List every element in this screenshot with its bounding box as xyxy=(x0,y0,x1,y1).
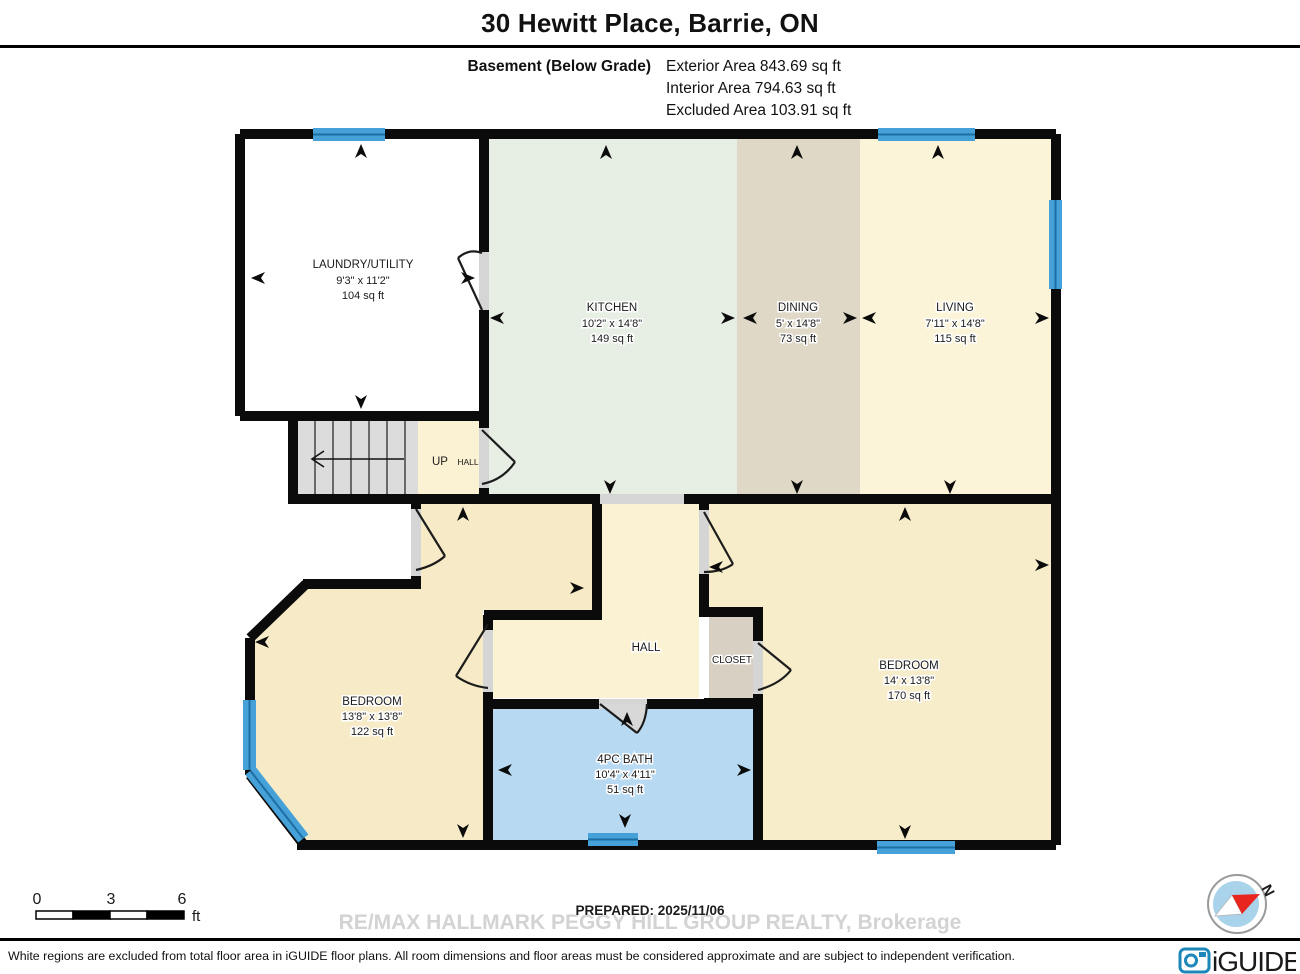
iguide-logo: iGUIDE xyxy=(1178,944,1296,974)
kitchen-dims: 10'2" x 14'8" xyxy=(582,318,642,330)
stairs-up-label: UP xyxy=(432,456,448,468)
footer-divider xyxy=(0,938,1300,941)
bath-area: 51 sq ft xyxy=(607,784,643,796)
hall-label: HALL xyxy=(632,642,661,654)
room-dining xyxy=(737,139,860,494)
prepared-date: PREPARED: 2025/11/06 xyxy=(0,903,1300,918)
stairs xyxy=(298,421,418,494)
bedroom-right-dims: 14' x 13'8" xyxy=(884,675,934,687)
stairs-hall-label: HALL xyxy=(457,457,479,467)
bedroom-right-area: 170 sq ft xyxy=(888,690,930,702)
kitchen-label: KITCHEN xyxy=(587,302,637,314)
living-area: 115 sq ft xyxy=(934,333,975,345)
living-dims: 7'11" x 14'8" xyxy=(925,318,985,330)
kitchen-area: 149 sq ft xyxy=(591,333,633,345)
bedroom-left-label: BEDROOM xyxy=(342,696,401,708)
bedroom-right-label: BEDROOM xyxy=(879,660,938,672)
bath-dims: 10'4" x 4'11" xyxy=(595,769,655,781)
bedroom-left-dims: 13'8" x 13'8" xyxy=(342,711,402,723)
room-kitchen xyxy=(489,139,737,494)
iguide-logo-text: iGUIDE xyxy=(1212,946,1296,974)
dining-area: 73 sq ft xyxy=(780,333,816,345)
dining-label: DINING xyxy=(778,302,818,314)
laundry-area: 104 sq ft xyxy=(342,290,384,302)
closet-label: CLOSET xyxy=(712,655,752,666)
bedroom-left-area: 122 sq ft xyxy=(351,726,393,738)
disclaimer-text: White regions are excluded from total fl… xyxy=(8,949,1015,963)
laundry-dims: 9'3" x 11'2" xyxy=(336,275,389,287)
floor-plan: LAUNDRY/UTILITY 9'3" x 11'2" 104 sq ft K… xyxy=(0,0,1300,973)
bath-label: 4PC BATH xyxy=(597,754,652,766)
dining-dims: 5' x 14'8" xyxy=(776,318,820,330)
living-label: LIVING xyxy=(936,302,974,314)
room-living xyxy=(860,139,1051,494)
laundry-label: LAUNDRY/UTILITY xyxy=(313,259,414,271)
